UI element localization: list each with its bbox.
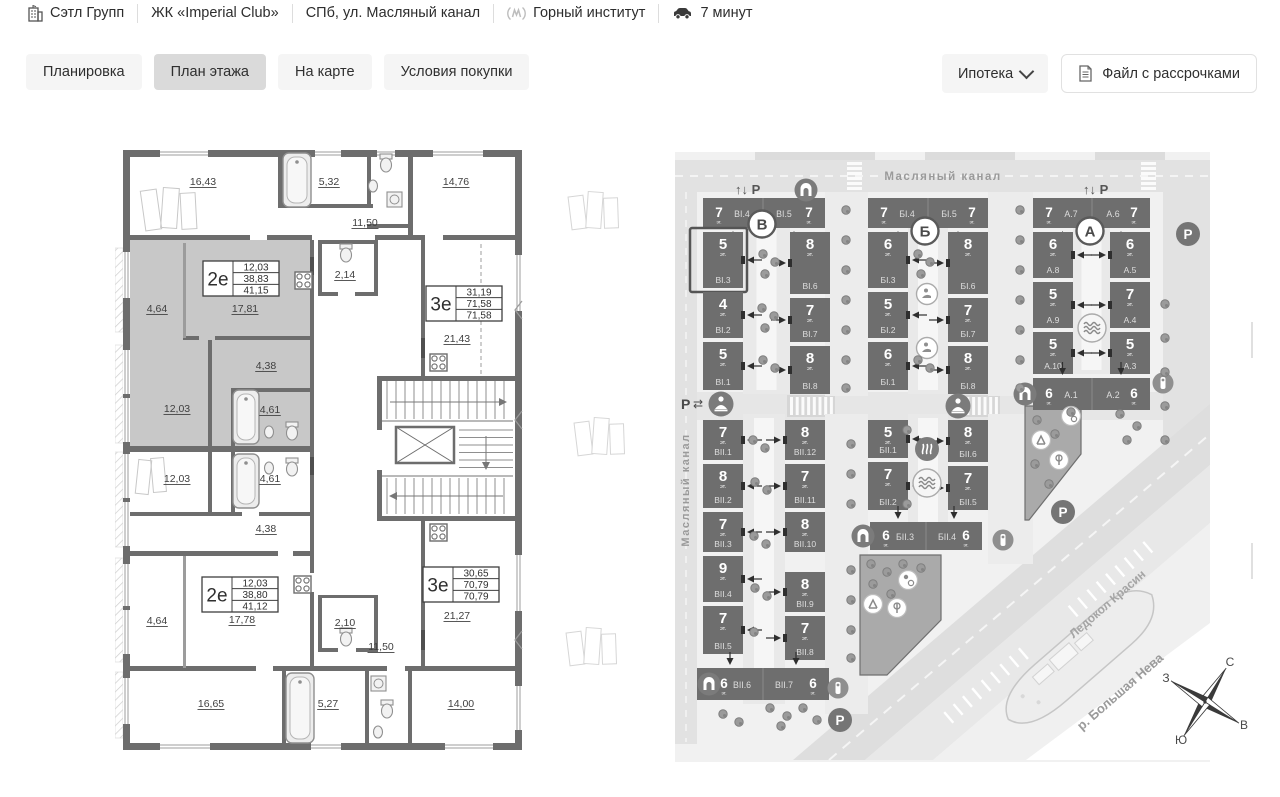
pool-icon [1078, 314, 1106, 342]
svg-text:41,12: 41,12 [242, 602, 267, 613]
svg-text:эт.: эт. [802, 592, 809, 598]
svg-text:А.10: А.10 [1044, 361, 1062, 371]
svg-text:8: 8 [964, 350, 972, 367]
svg-text:З: З [1162, 671, 1169, 685]
svg-text:21,27: 21,27 [444, 610, 470, 622]
svg-text:БI.4: БI.4 [899, 209, 915, 219]
svg-text:А.9: А.9 [1047, 315, 1060, 325]
svg-text:ВI.8: ВI.8 [802, 381, 817, 391]
svg-text:4,38: 4,38 [256, 360, 277, 372]
svg-text:17,81: 17,81 [232, 303, 258, 315]
svg-text:эт.: эт. [1131, 220, 1136, 225]
svg-text:8: 8 [964, 424, 972, 441]
info-icon [828, 678, 849, 699]
apartment-card-3е-1[interactable]: 3е31,1971,5871,58 [426, 286, 502, 322]
svg-text:3е: 3е [430, 295, 451, 316]
svg-text:P: P [681, 396, 690, 412]
svg-text:12,03: 12,03 [243, 262, 268, 273]
side-parking-icon: P⇄ [681, 396, 703, 412]
svg-text:12,03: 12,03 [242, 578, 267, 589]
svg-text:16,65: 16,65 [198, 698, 224, 710]
svg-text:ВI.6: ВI.6 [802, 281, 817, 291]
svg-text:38,80: 38,80 [242, 590, 267, 601]
drive-time: 7 минут [672, 5, 752, 21]
parking-icon: P [828, 708, 852, 732]
play-hoop-icon [888, 599, 907, 618]
svg-text:В: В [757, 217, 768, 234]
svg-text:P: P [1058, 505, 1067, 520]
svg-text:эт.: эт. [885, 312, 892, 318]
arch-icon [852, 525, 875, 548]
svg-text:7: 7 [880, 205, 888, 220]
svg-text:4,61: 4,61 [260, 404, 281, 416]
svg-text:4,61: 4,61 [260, 473, 281, 485]
svg-text:5: 5 [719, 346, 727, 363]
svg-text:8: 8 [964, 236, 972, 253]
svg-text:2е: 2е [206, 586, 227, 607]
svg-text:P: P [1183, 227, 1192, 242]
svg-text:ВII.9: ВII.9 [796, 599, 814, 609]
svg-text:эт.: эт. [965, 252, 972, 258]
svg-text:9: 9 [719, 560, 727, 577]
svg-text:7: 7 [964, 302, 972, 319]
svg-text:ВI.5: ВI.5 [776, 209, 792, 219]
svg-text:6: 6 [809, 676, 817, 691]
svg-text:2,14: 2,14 [335, 269, 356, 281]
apartment-card-3е-3[interactable]: 3е30,6570,7970,79 [423, 567, 499, 603]
svg-text:ВII.4: ВII.4 [714, 589, 732, 599]
svg-text:эт.: эт. [1050, 252, 1057, 258]
hammam-icon [915, 437, 939, 461]
svg-text:7: 7 [1045, 205, 1053, 220]
chevron-down-icon [1019, 64, 1035, 80]
svg-text:ВI.7: ВI.7 [802, 329, 817, 339]
svg-text:эт.: эт. [721, 691, 726, 696]
drive-time-value: 7 минут [700, 5, 752, 21]
svg-text:Масляный канал: Масляный канал [680, 433, 692, 546]
svg-text:эт.: эт. [802, 440, 809, 446]
apartment-card-2е-0[interactable]: 2е12,0338,8341,15 [203, 261, 279, 297]
svg-text:А.6: А.6 [1106, 209, 1119, 219]
svg-text:эт.: эт. [1127, 352, 1134, 358]
svg-text:4,38: 4,38 [256, 523, 277, 535]
svg-text:ВII.7: ВII.7 [775, 680, 793, 690]
svg-text:БI.1: БI.1 [880, 377, 895, 387]
svg-text:ВII.10: ВII.10 [794, 539, 816, 549]
svg-text:ВII.8: ВII.8 [796, 647, 814, 657]
svg-text:эт.: эт. [963, 543, 968, 548]
svg-text:4: 4 [719, 296, 728, 313]
svg-text:БII.1: БII.1 [879, 445, 897, 455]
section-marker-Б: Б [912, 218, 939, 245]
svg-text:31,19: 31,19 [466, 287, 491, 298]
svg-text:14,76: 14,76 [443, 176, 469, 188]
svg-text:70,79: 70,79 [463, 580, 488, 591]
arch-icon [698, 673, 721, 696]
installments-file-button[interactable]: Файл с рассрочками [1061, 54, 1257, 93]
svg-text:7: 7 [719, 424, 727, 441]
pool-icon [913, 469, 941, 497]
spa-icon [917, 338, 938, 359]
svg-text:ВII.1: ВII.1 [714, 447, 732, 457]
developer: Сэтл Групп [28, 5, 124, 22]
svg-text:Масляный канал: Масляный канал [884, 171, 1001, 183]
adjacent-plan-sketches [558, 182, 648, 677]
spa-icon [917, 284, 938, 305]
svg-text:эт.: эт. [1131, 401, 1136, 406]
svg-text:7: 7 [801, 620, 809, 637]
svg-text:70,79: 70,79 [463, 592, 488, 603]
tabs-bar: Планировка План этажа На карте Условия п… [26, 54, 529, 90]
parking-icon: P [1176, 222, 1200, 246]
svg-text:6: 6 [962, 528, 970, 543]
svg-text:P: P [835, 713, 844, 728]
svg-text:7: 7 [806, 302, 814, 319]
edge-mark [1251, 543, 1253, 579]
play-hoop-icon [1050, 451, 1069, 470]
svg-text:БI.8: БI.8 [960, 381, 975, 391]
svg-text:А.7: А.7 [1064, 209, 1077, 219]
svg-text:эт.: эт. [1127, 252, 1134, 258]
svg-text:эт.: эт. [807, 366, 814, 372]
svg-text:ВII.3: ВII.3 [714, 539, 732, 549]
tab-planirovka[interactable]: Планировка [26, 54, 142, 90]
mortgage-button[interactable]: Ипотека [942, 54, 1048, 93]
svg-text:БI.7: БI.7 [960, 329, 975, 339]
svg-text:эт.: эт. [720, 532, 727, 538]
svg-text:↑↓ P: ↑↓ P [1083, 182, 1109, 197]
svg-text:7: 7 [1130, 205, 1138, 220]
complex-name: ЖК «Imperial Club» [151, 5, 278, 21]
svg-text:5: 5 [719, 236, 727, 253]
svg-text:эт.: эт. [1050, 302, 1057, 308]
svg-text:БI.3: БI.3 [880, 275, 895, 285]
svg-text:71,58: 71,58 [466, 311, 491, 322]
tab-usloviya-pokupki[interactable]: Условия покупки [384, 54, 530, 90]
svg-text:эт.: эт. [716, 220, 721, 225]
svg-text:5,27: 5,27 [318, 698, 339, 710]
svg-text:эт.: эт. [885, 482, 892, 488]
site-map-panel: Ледокол Красинр. Большая НеваМасляный ка… [675, 152, 1210, 762]
svg-text:7: 7 [1126, 286, 1134, 303]
yoga-icon [709, 392, 734, 417]
svg-text:30,65: 30,65 [463, 568, 488, 579]
svg-text:8: 8 [801, 516, 809, 533]
svg-text:эт.: эт. [807, 318, 814, 324]
svg-text:11,50: 11,50 [352, 217, 378, 229]
svg-text:эт.: эт. [802, 636, 809, 642]
svg-text:6: 6 [1126, 236, 1134, 253]
svg-text:Ю: Ю [1175, 733, 1187, 747]
svg-text:В: В [1240, 718, 1248, 732]
svg-text:16,43: 16,43 [190, 176, 216, 188]
play-ball-icon [899, 571, 918, 590]
edge-mark [1251, 322, 1253, 358]
parking-icon: P [1051, 500, 1075, 524]
svg-text:7: 7 [801, 468, 809, 485]
svg-text:6: 6 [720, 676, 728, 691]
svg-text:2е: 2е [207, 270, 228, 291]
svg-text:ВII.5: ВII.5 [714, 641, 732, 651]
svg-text:эт.: эт. [720, 252, 727, 258]
svg-text:6: 6 [884, 346, 892, 363]
svg-text:эт.: эт. [885, 252, 892, 258]
svg-text:эт.: эт. [802, 532, 809, 538]
svg-text:5: 5 [884, 424, 892, 441]
svg-text:ВII.6: ВII.6 [733, 680, 751, 690]
svg-text:А.4: А.4 [1124, 315, 1137, 325]
svg-text:7: 7 [968, 205, 976, 220]
svg-text:7: 7 [805, 205, 813, 220]
svg-text:С: С [1226, 655, 1235, 669]
svg-text:эт.: эт. [1050, 352, 1057, 358]
svg-text:эт.: эт. [1046, 401, 1051, 406]
svg-text:эт.: эт. [802, 484, 809, 490]
svg-text:7: 7 [715, 205, 723, 220]
svg-text:2,10: 2,10 [335, 617, 356, 629]
svg-text:эт.: эт. [720, 626, 727, 632]
tab-na-karte[interactable]: На карте [278, 54, 372, 90]
svg-text:7: 7 [884, 466, 892, 483]
svg-text:21,43: 21,43 [444, 333, 470, 345]
svg-text:эт.: эт. [720, 576, 727, 582]
svg-text:БI.5: БI.5 [941, 209, 957, 219]
svg-text:ВII.2: ВII.2 [714, 495, 732, 505]
file-icon [1078, 65, 1093, 82]
building-icon [28, 5, 43, 22]
svg-text:↑↓ P: ↑↓ P [735, 182, 761, 197]
svg-text:41,15: 41,15 [243, 286, 268, 297]
page: Сэтл Групп ЖК «Imperial Club» СПб, ул. М… [0, 0, 1280, 797]
arch-icon [795, 179, 818, 202]
divider [493, 4, 494, 23]
play-slide-icon [864, 595, 883, 614]
file-label: Файл с рассрочками [1102, 66, 1240, 82]
svg-text:ВII.12: ВII.12 [794, 447, 816, 457]
svg-text:эт.: эт. [720, 312, 727, 318]
divider [292, 4, 293, 23]
metro: Горный институт [507, 5, 645, 21]
svg-text:6: 6 [1049, 236, 1057, 253]
svg-text:эт.: эт. [965, 486, 972, 492]
svg-text:Б: Б [920, 224, 931, 241]
svg-text:6: 6 [1045, 386, 1053, 401]
svg-text:БII.5: БII.5 [959, 497, 977, 507]
svg-text:5: 5 [884, 296, 892, 313]
mortgage-label: Ипотека [958, 66, 1013, 82]
svg-text:12,03: 12,03 [164, 473, 190, 485]
developer-name: Сэтл Групп [50, 5, 124, 21]
svg-text:эт.: эт. [965, 366, 972, 372]
apartment-card-2е-2[interactable]: 2е12,0338,8041,12 [202, 577, 278, 613]
svg-text:3е: 3е [427, 576, 448, 597]
svg-text:14,00: 14,00 [448, 698, 474, 710]
svg-text:БII.6: БII.6 [959, 449, 977, 459]
svg-text:12,03: 12,03 [164, 403, 190, 415]
svg-text:БII.3: БII.3 [896, 532, 914, 542]
play-slide-icon [1032, 431, 1051, 450]
divider [137, 4, 138, 23]
svg-text:7: 7 [964, 470, 972, 487]
svg-text:5,32: 5,32 [319, 176, 340, 188]
metro-station: Горный институт [533, 5, 645, 21]
svg-text:38,83: 38,83 [243, 274, 268, 285]
svg-text:8: 8 [801, 424, 809, 441]
svg-text:6: 6 [882, 528, 890, 543]
svg-text:эт.: эт. [720, 440, 727, 446]
svg-text:БII.2: БII.2 [879, 497, 897, 507]
svg-text:5: 5 [1049, 286, 1057, 303]
svg-text:БII.4: БII.4 [938, 532, 956, 542]
svg-text:эт.: эт. [969, 220, 974, 225]
svg-text:А.5: А.5 [1124, 265, 1137, 275]
svg-text:эт.: эт. [885, 362, 892, 368]
svg-text:БI.6: БI.6 [960, 281, 975, 291]
svg-text:ВI.4: ВI.4 [734, 209, 750, 219]
svg-text:ВI.2: ВI.2 [715, 325, 730, 335]
svg-text:7: 7 [719, 610, 727, 627]
svg-text:эт.: эт. [1046, 220, 1051, 225]
svg-text:5: 5 [1126, 336, 1134, 353]
svg-text:А.3: А.3 [1124, 361, 1137, 371]
info-icon [993, 530, 1014, 551]
car-icon [672, 7, 693, 20]
compass-rose: СВЮЗ [1152, 648, 1260, 763]
svg-text:эт.: эт. [810, 691, 815, 696]
entry-parking-icon: ↑↓ P [1083, 182, 1109, 197]
svg-text:эт.: эт. [807, 252, 814, 258]
svg-text:8: 8 [801, 576, 809, 593]
yoga-icon [946, 394, 971, 419]
svg-text:А.2: А.2 [1106, 390, 1119, 400]
svg-text:8: 8 [806, 350, 814, 367]
svg-text:эт.: эт. [1127, 302, 1134, 308]
svg-text:8: 8 [719, 468, 727, 485]
svg-text:ВI.1: ВI.1 [715, 377, 730, 387]
svg-text:эт.: эт. [965, 318, 972, 324]
svg-text:4,64: 4,64 [147, 615, 168, 627]
section-marker-А: А [1077, 218, 1104, 245]
svg-text:17,78: 17,78 [229, 614, 255, 626]
svg-text:ВI.3: ВI.3 [715, 275, 730, 285]
floor-plan-panel: 16,435,3214,7611,502,144,6417,814,3812,0… [115, 140, 530, 762]
tab-plan-etazha[interactable]: План этажа [154, 54, 266, 90]
svg-text:4,64: 4,64 [147, 303, 168, 315]
svg-text:11,50: 11,50 [368, 641, 394, 653]
svg-text:эт.: эт. [720, 484, 727, 490]
divider [658, 4, 659, 23]
svg-text:А.1: А.1 [1064, 390, 1077, 400]
svg-text:А: А [1085, 224, 1096, 241]
svg-text:эт.: эт. [806, 220, 811, 225]
svg-text:эт.: эт. [881, 220, 886, 225]
metro-icon [507, 6, 526, 21]
svg-text:71,58: 71,58 [466, 299, 491, 310]
svg-text:ВII.11: ВII.11 [794, 495, 816, 505]
svg-text:6: 6 [1130, 386, 1138, 401]
svg-text:эт.: эт. [883, 543, 888, 548]
svg-text:эт.: эт. [965, 440, 972, 446]
svg-text:БI.2: БI.2 [880, 325, 895, 335]
toolbar: Ипотека Файл с рассрочками [942, 54, 1257, 93]
svg-text:7: 7 [719, 516, 727, 533]
section-marker-В: В [749, 211, 776, 238]
header-bar: Сэтл Групп ЖК «Imperial Club» СПб, ул. М… [28, 1, 753, 25]
svg-text:5: 5 [1049, 336, 1057, 353]
svg-text:6: 6 [884, 236, 892, 253]
entry-parking-icon: ↑↓ P [735, 182, 761, 197]
svg-text:эт.: эт. [720, 362, 727, 368]
svg-text:⇄: ⇄ [693, 397, 703, 411]
svg-text:8: 8 [806, 236, 814, 253]
address: СПб, ул. Масляный канал [306, 5, 480, 21]
svg-text:А.8: А.8 [1047, 265, 1060, 275]
